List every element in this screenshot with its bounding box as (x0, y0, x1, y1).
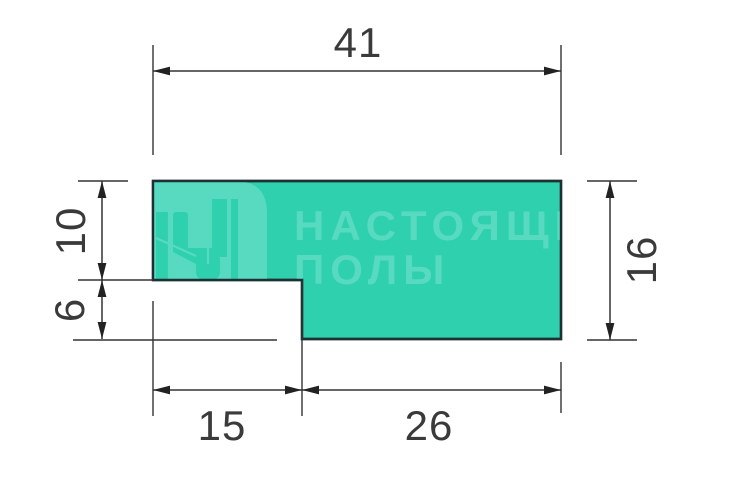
dimension-right-height: 16 (587, 181, 665, 340)
dimension-label-total-width: 41 (334, 19, 383, 66)
arrow-left-icon (153, 386, 170, 395)
arrow-right-icon (544, 67, 561, 76)
watermark-brand-line2: ПОЛЫ (294, 246, 450, 293)
dimension-label-upper-left-height: 10 (47, 207, 94, 256)
technical-drawing-canvas: НАСТОЯЩИ ПОЛЫ 41 10 6 16 (0, 0, 735, 498)
arrow-down-icon (606, 323, 615, 340)
arrow-down-icon (98, 322, 107, 339)
arrow-down-icon (98, 263, 107, 280)
arrow-right-icon (544, 386, 561, 395)
dimension-label-right-height: 16 (618, 236, 665, 285)
arrow-up-icon (606, 181, 615, 198)
dimension-total-width: 41 (153, 19, 561, 155)
arrow-up-icon (98, 280, 107, 297)
arrow-left-icon (302, 386, 319, 395)
dimension-label-lower-left-height: 6 (46, 298, 93, 322)
dimension-label-bottom-width: 26 (405, 402, 454, 449)
arrow-left-icon (153, 67, 170, 76)
profile-shape: НАСТОЯЩИ ПОЛЫ (153, 181, 591, 339)
dimension-label-notch-width: 15 (198, 402, 247, 449)
flooring-planks-logo-icon (153, 181, 267, 283)
profile-dimension-drawing: НАСТОЯЩИ ПОЛЫ 41 10 6 16 (0, 0, 735, 498)
arrow-right-icon (285, 386, 302, 395)
arrow-up-icon (98, 181, 107, 198)
watermark-brand-line1: НАСТОЯЩИ (294, 202, 591, 249)
